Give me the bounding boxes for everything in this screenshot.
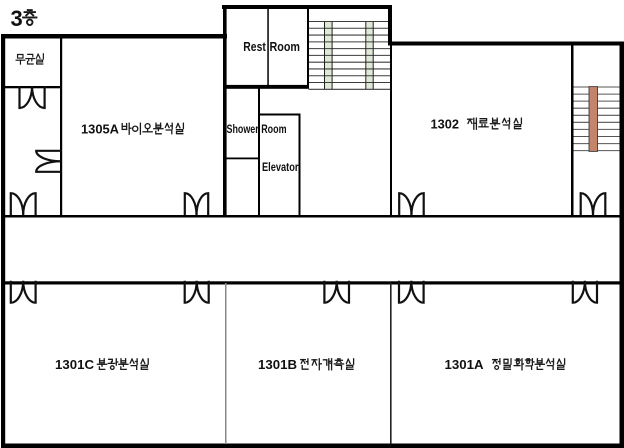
svg-text:Elevator: Elevator [262, 162, 299, 174]
svg-text:1301C: 1301C [55, 357, 95, 372]
svg-text:1301B: 1301B [258, 357, 297, 372]
svg-text:Rest: Rest [243, 39, 266, 54]
svg-text:1302: 1302 [431, 117, 460, 132]
svg-text:Shower Room: Shower Room [227, 124, 287, 136]
svg-text:Room: Room [270, 39, 301, 54]
svg-text:1305A: 1305A [81, 122, 120, 137]
svg-text:3: 3 [11, 6, 23, 31]
svg-text:1301A: 1301A [445, 357, 485, 372]
